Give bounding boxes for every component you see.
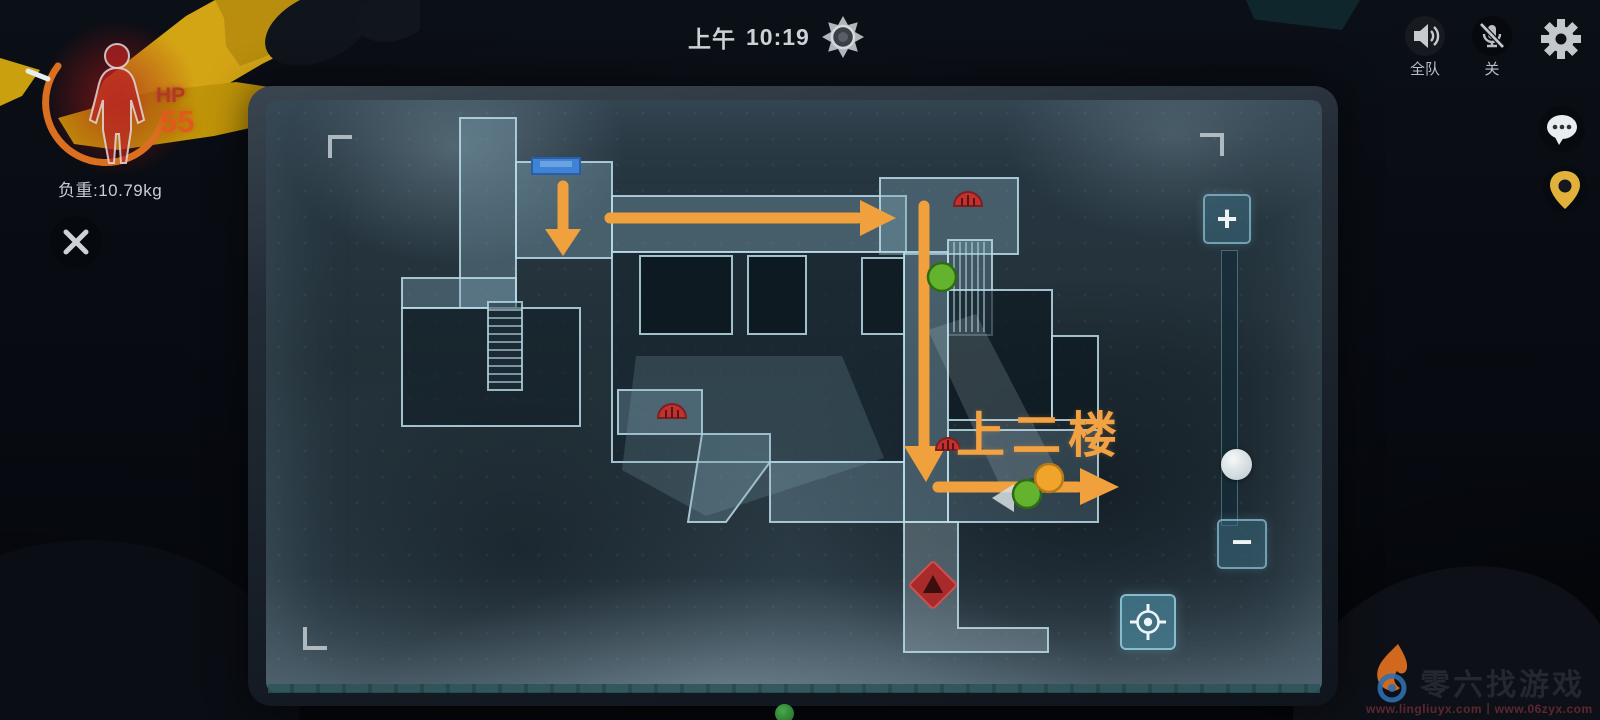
weight-readout: 负重:10.79kg [58, 176, 162, 201]
time-display: 上午 10:19 [688, 14, 866, 60]
zoom-out-glyph: − [1231, 524, 1252, 560]
team-voice-button[interactable]: 全队 [1405, 16, 1445, 79]
chat-bubble-icon [1544, 111, 1580, 147]
zoom-out-button[interactable]: − [1217, 519, 1267, 569]
time-period: 上午 [688, 20, 736, 54]
settings-button[interactable] [1540, 18, 1582, 65]
mic-state-label: 关 [1484, 58, 1499, 79]
route-note-label: 上二楼 [956, 396, 1124, 467]
map-zoom-slider[interactable] [1221, 250, 1238, 526]
watermark-logo [1366, 644, 1420, 706]
slider-knob[interactable] [1221, 449, 1252, 480]
time-value: 10:19 [746, 24, 810, 51]
recenter-button[interactable] [1120, 594, 1176, 650]
game-scene: 上二楼 + − 上午 10:19 [0, 0, 1600, 720]
zoom-in-glyph: + [1216, 201, 1237, 237]
gear-icon [1540, 18, 1582, 60]
close-icon [61, 227, 91, 257]
watermark-title: 零六找游戏 [1420, 660, 1585, 704]
location-pin-icon [1545, 167, 1585, 211]
hp-value: 55 [160, 104, 194, 140]
location-button[interactable] [1542, 166, 1588, 212]
voice-channel-label: 全队 [1410, 58, 1440, 79]
close-button[interactable] [50, 216, 102, 268]
mic-muted-icon [1472, 16, 1512, 56]
chat-button[interactable] [1539, 106, 1585, 152]
mic-toggle-button[interactable]: 关 [1472, 16, 1512, 79]
speaker-icon [1405, 16, 1445, 56]
watermark-urls: www.lingliuyx.com丨www.06zyx.com [1366, 700, 1593, 717]
tablet-led [775, 704, 794, 720]
sun-icon [820, 14, 866, 60]
screen-bottom-strip [268, 684, 1320, 693]
crosshair-icon [1127, 601, 1169, 643]
zoom-in-button[interactable]: + [1203, 194, 1251, 244]
